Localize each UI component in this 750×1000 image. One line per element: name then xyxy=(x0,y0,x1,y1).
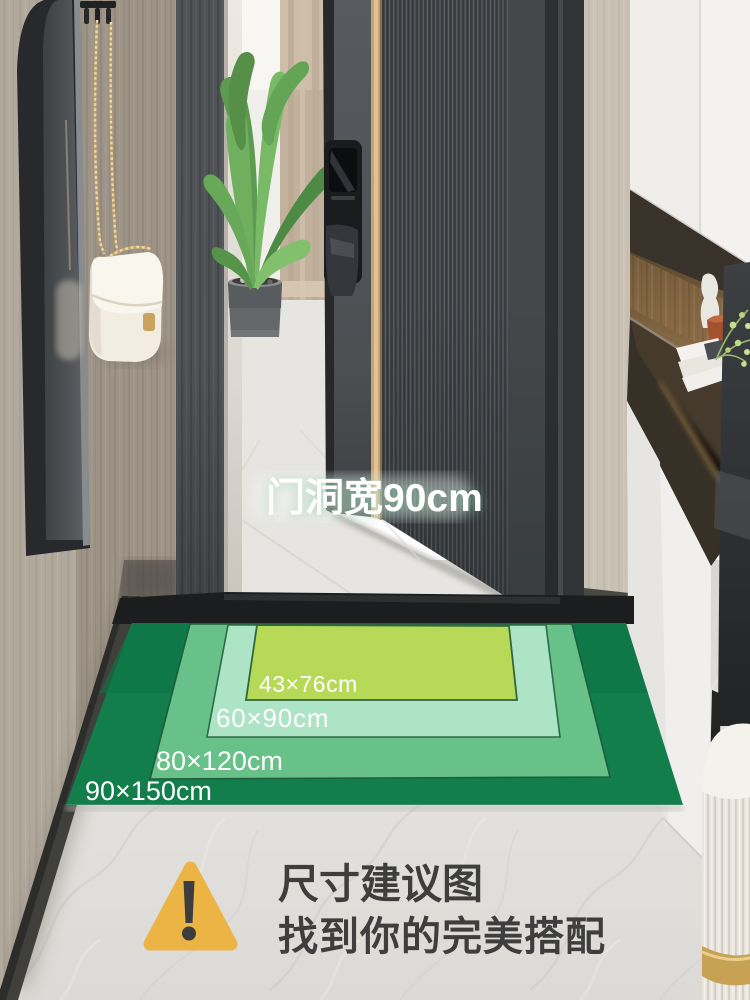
svg-text:60×90cm: 60×90cm xyxy=(216,703,329,733)
svg-text:尺寸建议图: 尺寸建议图 xyxy=(278,861,483,907)
svg-text:90×150cm: 90×150cm xyxy=(85,776,212,806)
svg-text:80×120cm: 80×120cm xyxy=(156,746,283,776)
svg-text:找到你的完美搭配: 找到你的完美搭配 xyxy=(278,915,606,959)
svg-text:43×76cm: 43×76cm xyxy=(259,671,358,697)
svg-text:门洞宽90cm: 门洞宽90cm xyxy=(266,476,483,520)
